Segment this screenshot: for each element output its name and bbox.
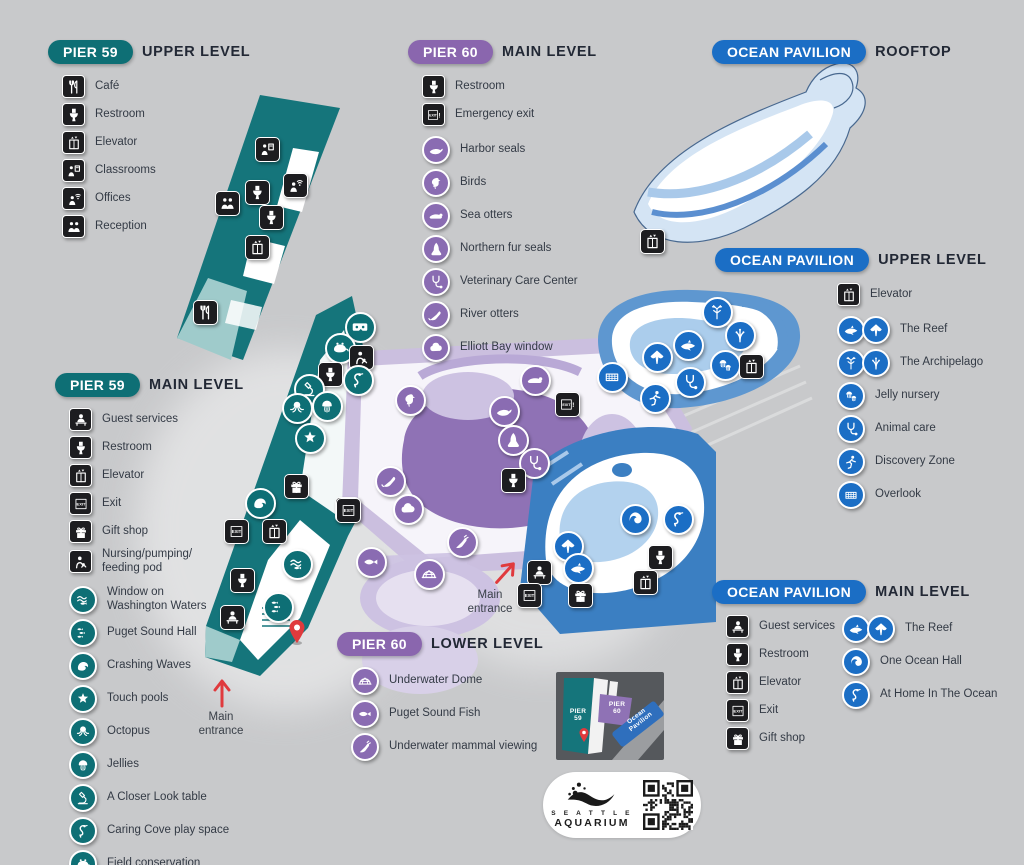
crashing-waves-icon [75,658,91,674]
legend-item: Gift shop [69,520,244,543]
exhibit-icon-badge [422,169,450,197]
exhibit-icon-badge [422,268,450,296]
legend-item: Underwater mammal viewing [351,733,543,761]
legend-item-label: Exit [102,497,121,511]
legend-header: PIER 59 UPPER LEVEL [48,40,250,64]
level-label: LOWER LEVEL [431,636,543,652]
legend-item-label: Elevator [102,469,144,483]
legend-item-label: Animal care [875,422,936,436]
restroom-icon [730,647,746,663]
exhibit-icon-badge [69,652,97,680]
double-icon-badge [837,316,890,344]
exhibit-icon-badge [842,681,870,709]
exhibit-icon-badge [862,316,890,344]
archipelago-kelp-icon [868,355,884,371]
legend-item: Northern fur seals [422,235,597,263]
facility-icon-badge [62,75,85,98]
legend-item-label: Restroom [759,648,809,662]
reef-fish-icon [843,322,859,338]
legend-item: EXIT!Emergency exit [422,103,597,126]
legend-item-label: Underwater mammal viewing [389,740,537,754]
legend-ocean-pavilion-upper: OCEAN PAVILION UPPER LEVEL ElevatorThe R… [715,248,987,514]
overview-inset-map: PIER 59 PIER 60 Ocean Pavilion [556,672,664,760]
reef-ray-icon [873,621,889,637]
legend-pier60-lower: PIER 60 LOWER LEVEL Underwater DomePuget… [337,632,543,766]
exhibit-icon-badge [867,615,895,643]
legend-item: Harbor seals [422,136,597,164]
legend-item-label: One Ocean Hall [880,655,962,669]
legend-item: Veterinary Care Center [422,268,597,296]
seattle-aquarium-map: EXITEXITEXIT!EXITEXIT Main entrance Main… [0,0,1024,865]
main-entrance-label-ocean-pavilion: Main entrance [451,588,529,617]
legend-item: Café [62,75,250,98]
ocean-pavilion-pill: OCEAN PAVILION [712,580,866,604]
exhibit-icon-badge [69,817,97,845]
legend-item-label: A Closer Look table [107,791,207,805]
puget-sound-fish-icon [357,706,373,722]
discovery-zone-icon [843,454,859,470]
harbor-seal-icon [428,142,444,158]
legend-item: A Closer Look table [69,784,244,812]
legend-item: Nursing/pumping/ feeding pod [69,548,244,576]
legend-header: OCEAN PAVILION ROOFTOP [712,40,951,64]
legend-item-label: Caring Cove play space [107,824,229,838]
legend-item-label: Octopus [107,725,150,739]
legend-item-label: Elevator [95,136,137,150]
legend-item: Guest services [726,615,842,638]
facility-icon-badge: EXIT [69,492,92,515]
elevator-icon [66,135,82,151]
reef-ray-icon [868,322,884,338]
facility-icon-badge [69,520,92,543]
legend-item: Elliott Bay window [422,334,597,362]
level-label: MAIN LEVEL [149,377,244,393]
elevator-icon [841,287,857,303]
seattle-aquarium-logo: S E A T T L E AQUARIUM [551,781,632,829]
legend-item-label: Sea otters [460,209,512,223]
legend-item: The Archipelago [837,349,987,377]
pier60-pill: PIER 60 [408,40,493,64]
legend-item: At Home In The Ocean [842,681,997,709]
svg-text:EXIT: EXIT [76,501,85,506]
exhibit-icon-badge [351,700,379,728]
legend-pier60-main: PIER 60 MAIN LEVEL RestroomEXIT!Emergenc… [408,40,597,367]
legend-item-label: Elevator [870,288,912,302]
jelly-nursery-icon [843,388,859,404]
legend-item-label: Guest services [759,620,835,634]
legend-item: Puget Sound Hall [69,619,244,647]
legend-item: Restroom [422,75,597,98]
brand-aquarium: AQUARIUM [554,817,629,829]
overlook-icon [843,487,859,503]
level-label: UPPER LEVEL [878,252,986,268]
exhibit-icon-badge [69,619,97,647]
guest-services-icon [73,412,89,428]
ocean-pavilion-pill: OCEAN PAVILION [715,248,869,272]
legend-ocean-pavilion-main: OCEAN PAVILION MAIN LEVEL Guest services… [712,580,997,755]
exhibit-icon-badge [837,349,865,377]
legend-header: PIER 59 MAIN LEVEL [55,373,244,397]
legend-item-label: Northern fur seals [460,242,551,256]
facility-icon-badge: EXIT [726,699,749,722]
facility-icon-badge [837,283,860,306]
classrooms-icon [66,163,82,179]
at-home-ocean-icon [848,687,864,703]
legend-item: Classrooms [62,159,250,182]
legend-item: Field conservation [69,850,244,865]
legend-header: PIER 60 MAIN LEVEL [408,40,597,64]
legend-pier59-upper: PIER 59 UPPER LEVEL CaféRestroomElevator… [48,40,250,243]
caring-cove-icon [75,823,91,839]
legend-item-label: Birds [460,176,486,190]
legend-item-label: Gift shop [102,525,148,539]
legend-item-label: River otters [460,308,519,322]
legend-item-label: Restroom [95,108,145,122]
exhibit-icon-badge [422,334,450,362]
facility-icon-badge [69,550,92,573]
legend-item: Underwater Dome [351,667,543,695]
exhibit-icon-badge [837,415,865,443]
jellies-icon [75,757,91,773]
legend-item-label: Field conservation [107,857,200,865]
inset-label-pier60: PIER 60 [606,701,628,716]
facility-icon-badge [726,615,749,638]
legend-header: OCEAN PAVILION MAIN LEVEL [712,580,997,604]
double-icon-badge [842,615,895,643]
legend-item: Restroom [726,643,842,666]
legend-item-label: Harbor seals [460,143,525,157]
legend-item: One Ocean Hall [842,648,997,676]
exhibit-icon-badge [422,301,450,329]
facility-icon-badge [726,643,749,666]
legend-item-label: Gift shop [759,732,805,746]
legend-item-label: Exit [759,704,778,718]
facility-icon-badge [69,464,92,487]
one-ocean-hall-icon [848,654,864,670]
exhibit-icon-badge [837,316,865,344]
facility-icon-badge [62,187,85,210]
exhibit-icon-badge [351,667,379,695]
cafe-icon [66,79,82,95]
legend-item-label: The Reef [905,622,952,636]
legend-item: Jellies [69,751,244,779]
legend-item-label: Nursing/pumping/ feeding pod [102,548,192,576]
legend-item: Reception [62,215,250,238]
facility-icon-badge [726,727,749,750]
legend-item-label: Window on Washington Waters [107,586,207,614]
legend-item: Overlook [837,481,987,509]
octopus-icon [75,724,91,740]
legend-item-label: Overlook [875,488,921,502]
exhibit-icon-badge [69,685,97,713]
archipelago-coral-icon [843,355,859,371]
facility-icon-badge [62,159,85,182]
underwater-mammal-icon [357,739,373,755]
river-otter-icon [428,307,444,323]
legend-item: Elevator [837,283,987,306]
restroom-icon [66,107,82,123]
legend-item: The Reef [837,316,987,344]
offices-icon [66,191,82,207]
legend-item: River otters [422,301,597,329]
pier59-pill: PIER 59 [55,373,140,397]
restroom-icon [73,440,89,456]
legend-item-label: Classrooms [95,164,156,178]
legend-item: Offices [62,187,250,210]
exit-icon: EXIT [730,703,746,719]
legend-header: PIER 60 LOWER LEVEL [337,632,543,656]
pier60-pill: PIER 60 [337,632,422,656]
exhibit-icon-badge [69,718,97,746]
legend-item: Birds [422,169,597,197]
animal-care-icon [843,421,859,437]
legend-item-label: Restroom [102,441,152,455]
gift-shop-icon [730,731,746,747]
legend-item: The Reef [842,615,997,643]
legend-header: OCEAN PAVILION UPPER LEVEL [715,248,987,272]
exhibit-icon-badge [837,448,865,476]
legend-item-label: Touch pools [107,692,168,706]
exhibit-icon-badge [351,733,379,761]
legend-item-label: The Archipelago [900,356,983,370]
ocean-pavilion-pill: OCEAN PAVILION [712,40,866,64]
legend-item-label: Jellies [107,758,139,772]
level-label: MAIN LEVEL [502,44,597,60]
vet-care-icon [428,274,444,290]
exhibit-icon-badge [862,349,890,377]
legend-item-label: Guest services [102,413,178,427]
exhibit-icon-badge [69,586,97,614]
puget-sound-hall-icon [75,625,91,641]
svg-text:EXIT: EXIT [429,113,438,117]
facility-icon-badge [726,671,749,694]
bird-icon [428,175,444,191]
closer-look-icon [75,790,91,806]
underwater-dome-icon [357,673,373,689]
exhibit-icon-badge [69,784,97,812]
exhibit-icon-badge [837,481,865,509]
facility-icon-badge [422,75,445,98]
window-waters-icon [75,592,91,608]
legend-item: Restroom [62,103,250,126]
legend-item-label: Café [95,80,119,94]
exhibit-icon-badge [422,136,450,164]
exhibit-icon-badge [69,751,97,779]
legend-item-label: Emergency exit [455,108,534,122]
seattle-aquarium-brand: S E A T T L E AQUARIUM [543,772,701,838]
reef-fish-icon [848,621,864,637]
legend-item: Window on Washington Waters [69,586,244,614]
legend-item: Puget Sound Fish [351,700,543,728]
brand-seattle: S E A T T L E [551,810,632,817]
pier59-pill: PIER 59 [48,40,133,64]
legend-item-label: Crashing Waves [107,659,191,673]
legend-item: Animal care [837,415,987,443]
legend-item: Touch pools [69,685,244,713]
legend-item-label: Restroom [455,80,505,94]
legend-item: Octopus [69,718,244,746]
exhibit-icon-badge [837,382,865,410]
exhibit-icon-badge [842,648,870,676]
restroom-icon [426,79,442,95]
facility-icon-badge [62,131,85,154]
exit-icon: EXIT [73,496,89,512]
legend-item-label: Reception [95,220,147,234]
facility-icon-badge [69,436,92,459]
emergency-exit-icon: EXIT! [426,107,442,123]
qr-code [643,780,693,830]
facility-icon-badge [69,408,92,431]
level-label: UPPER LEVEL [142,44,250,60]
legend-item: Guest services [69,408,244,431]
touch-pools-icon [75,691,91,707]
exhibit-icon-badge [842,615,870,643]
legend-item-label: The Reef [900,323,947,337]
sea-otter-icon [428,208,444,224]
exhibit-icon-badge [69,850,97,865]
level-label: ROOFTOP [875,44,951,60]
inset-label-pier59: PIER 59 [567,708,589,723]
legend-item-label: Offices [95,192,131,206]
legend-item-label: Discovery Zone [875,455,955,469]
legend-item-label: Jelly nursery [875,389,940,403]
legend-item-label: Veterinary Care Center [460,275,578,289]
double-icon-badge [837,349,890,377]
elliott-bay-window-icon [428,340,444,356]
legend-item: Jelly nursery [837,382,987,410]
reception-icon [66,219,82,235]
exhibit-icon-badge [422,202,450,230]
legend-item-label: At Home In The Ocean [880,688,997,702]
elevator-icon [730,675,746,691]
facility-icon-badge [62,103,85,126]
building-ocean-pavilion-rooftop [634,63,865,242]
legend-item: EXITExit [726,699,842,722]
legend-item: Restroom [69,436,244,459]
legend-item: Elevator [726,671,842,694]
exhibit-icon-badge [422,235,450,263]
legend-item: Sea otters [422,202,597,230]
svg-text:!: ! [438,113,440,119]
legend-item-label: Underwater Dome [389,674,482,688]
legend-item: EXITExit [69,492,244,515]
legend-item: Discovery Zone [837,448,987,476]
legend-item: Elevator [62,131,250,154]
location-pin [286,618,308,646]
facility-icon-badge: EXIT! [422,103,445,126]
legend-item-label: Elevator [759,676,801,690]
legend-item-label: Puget Sound Fish [389,707,480,721]
guest-services-icon [730,619,746,635]
legend-pier59-main: PIER 59 MAIN LEVEL Guest servicesRestroo… [55,373,244,865]
legend-item: Elevator [69,464,244,487]
legend-item: Crashing Waves [69,652,244,680]
gift-shop-icon [73,524,89,540]
elevator-icon [73,468,89,484]
legend-item: Gift shop [726,727,842,750]
legend-item: Caring Cove play space [69,817,244,845]
fur-seal-icon [428,241,444,257]
legend-ocean-pavilion-rooftop: OCEAN PAVILION ROOFTOP [712,40,951,64]
svg-text:EXIT: EXIT [733,708,742,713]
facility-icon-badge [62,215,85,238]
nursing-pod-icon [73,554,89,570]
field-conservation-icon [75,856,91,865]
wave-logo-icon [564,781,620,809]
level-label: MAIN LEVEL [875,584,970,600]
legend-item-label: Elliott Bay window [460,341,553,355]
legend-item-label: Puget Sound Hall [107,626,197,640]
